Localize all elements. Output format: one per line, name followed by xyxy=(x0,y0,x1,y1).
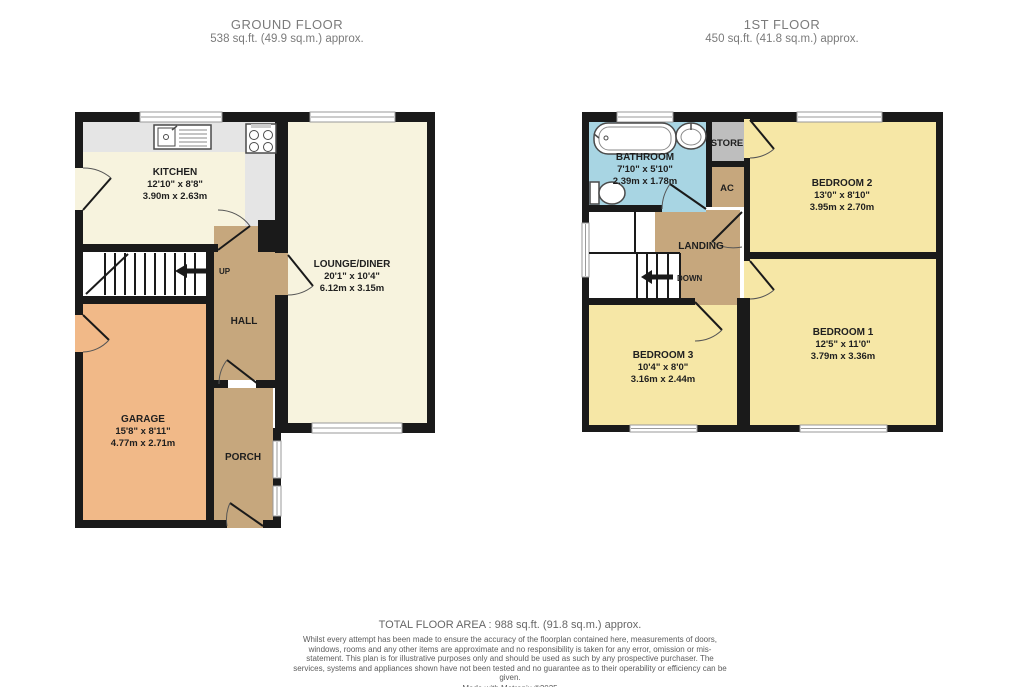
bathroom-dims-imperial: 7'10" x 5'10" xyxy=(617,164,673,175)
toilet-cistern-icon xyxy=(590,182,599,204)
door-gap xyxy=(695,298,737,305)
sink-bowl-icon xyxy=(158,128,175,146)
store-label: STORE xyxy=(711,138,744,149)
bedroom2-dims-metric: 3.95m x 2.70m xyxy=(810,202,874,213)
door-gap xyxy=(75,315,83,352)
lounge-dims-imperial: 20'1" x 10'4" xyxy=(324,271,380,282)
wall xyxy=(744,252,936,259)
wall xyxy=(706,161,744,167)
wall xyxy=(582,205,662,212)
burner-icon xyxy=(264,143,273,152)
door-gap xyxy=(744,261,750,298)
landing-label: LANDING xyxy=(678,241,724,252)
wall xyxy=(206,380,228,388)
first-floor-plan: BATHROOM 7'10" x 5'10" 2.39m x 1.78m STO… xyxy=(582,112,943,432)
bedroom1-dims-imperial: 12'5" x 11'0" xyxy=(815,339,870,350)
down-label: DOWN xyxy=(677,274,703,283)
bedroom3-dims-imperial: 10'4" x 8'0" xyxy=(638,362,689,373)
wall xyxy=(427,112,435,433)
floorplan-page: GROUND FLOOR 538 sq.ft. (49.9 sq.m.) app… xyxy=(0,0,1020,687)
door-gap xyxy=(275,253,288,295)
bathroom-label: BATHROOM xyxy=(616,152,674,163)
door-gap xyxy=(662,205,706,212)
bedroom1-dims-metric: 3.79m x 3.36m xyxy=(811,351,875,362)
door-gap xyxy=(75,168,83,210)
bedroom2-dims-imperial: 13'0" x 8'10" xyxy=(814,190,870,201)
lounge-label: LOUNGE/DINER xyxy=(314,259,391,270)
kitchen-dims-imperial: 12'10" x 8'8" xyxy=(147,179,203,190)
garage-dims-metric: 4.77m x 2.71m xyxy=(111,438,175,449)
garage-label: GARAGE xyxy=(121,414,165,425)
wall xyxy=(75,244,218,252)
burner-icon xyxy=(264,131,273,140)
burner-icon xyxy=(250,143,259,152)
footer: TOTAL FLOOR AREA : 988 sq.ft. (91.8 sq.m… xyxy=(290,619,730,687)
bedroom1-label: BEDROOM 1 xyxy=(813,327,874,338)
disclaimer-text: Whilst every attempt has been made to en… xyxy=(290,635,730,683)
kitchen-dims-metric: 3.90m x 2.63m xyxy=(143,191,207,202)
wall xyxy=(258,220,275,252)
lounge-dims-metric: 6.12m x 3.15m xyxy=(320,283,384,294)
wall xyxy=(75,296,214,304)
floorplan-drawing: KITCHEN 12'10" x 8'8" 3.90m x 2.63m LOUN… xyxy=(0,0,1020,687)
hall-label: HALL xyxy=(231,316,258,327)
wall xyxy=(737,298,744,425)
garage-floor xyxy=(83,304,206,520)
door-gap xyxy=(744,119,750,158)
stove-panel-icon xyxy=(251,124,271,128)
up-label: UP xyxy=(219,267,231,276)
wall xyxy=(936,112,943,432)
ground-floor-plan: KITCHEN 12'10" x 8'8" 3.90m x 2.63m LOUN… xyxy=(75,112,435,528)
bedroom2-label: BEDROOM 2 xyxy=(812,178,873,189)
ff-stairwell-upper xyxy=(589,210,655,253)
garage-dims-imperial: 15'8" x 8'11" xyxy=(115,426,170,437)
total-floor-area: TOTAL FLOOR AREA : 988 sq.ft. (91.8 sq.m… xyxy=(290,619,730,631)
porch-label: PORCH xyxy=(225,452,261,463)
bedroom3-dims-metric: 3.16m x 2.44m xyxy=(631,374,695,385)
bathroom-dims-metric: 2.39m x 1.78m xyxy=(613,176,677,187)
kitchen-label: KITCHEN xyxy=(153,167,197,178)
ac-label: AC xyxy=(720,183,734,194)
bedroom3-label: BEDROOM 3 xyxy=(633,350,694,361)
burner-icon xyxy=(250,131,259,140)
